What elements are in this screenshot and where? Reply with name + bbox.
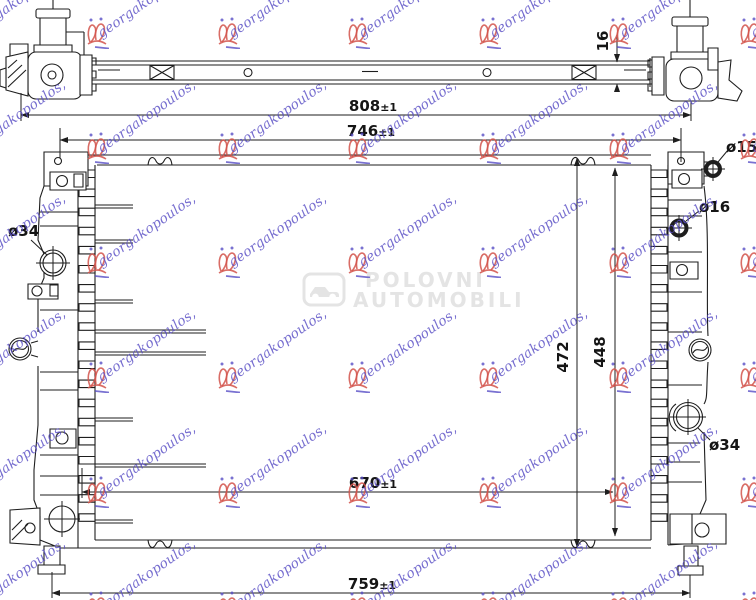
right-foot-pin [678, 546, 703, 575]
right-port-15 [701, 157, 725, 181]
right-crimp-tabs [651, 170, 667, 521]
dim-bottom-width: 759±1 [348, 575, 396, 593]
label-right-port-16: ø16 [699, 198, 730, 216]
left-mount-boss [10, 501, 80, 545]
right-port-34 [669, 399, 706, 435]
bottom-clip-right [571, 540, 595, 547]
right-pump-assembly [648, 0, 742, 101]
crossbar-hole-right [483, 69, 491, 77]
label-left-port-34: ø34 [8, 222, 39, 240]
crossbar-bowtie-right [572, 66, 596, 80]
radiator-technical-drawing: 16 808±1 746±1 472 448 670±1 759±1 [0, 0, 756, 600]
crossbar [92, 58, 650, 87]
bottom-clip-left [148, 540, 172, 547]
right-bracket-mid [670, 262, 698, 279]
crossbar-hole-left [244, 69, 252, 77]
left-bracket-low [50, 429, 76, 448]
dim-overall-height: 472 [554, 341, 572, 372]
dim-lower-width: 670±1 [349, 474, 397, 492]
dimension-annotations: 16 808±1 746±1 472 448 670±1 759±1 [8, 31, 756, 598]
label-right-port-15: ø15 [726, 138, 756, 156]
top-clip-left [148, 158, 172, 165]
left-foot-pin [38, 546, 65, 574]
dim-overall-width: 808±1 [349, 97, 397, 115]
crossbar-bowtie-left [150, 66, 174, 80]
label-right-port-34: ø34 [709, 436, 740, 454]
left-bracket-mid [28, 284, 58, 299]
left-tank [9, 152, 88, 574]
radiator-drawing-page: POLOVNI AUTOMOBILI [0, 0, 756, 600]
left-crimp-tabs [79, 170, 95, 521]
dim-upper-width: 746±1 [347, 122, 395, 140]
right-cap [689, 339, 711, 361]
dim-core-height: 448 [591, 336, 609, 367]
top-clip-right [571, 158, 595, 165]
left-cap [9, 338, 38, 360]
left-port-34 [36, 246, 70, 280]
right-bracket-low [670, 514, 726, 544]
left-pump-assembly [0, 0, 96, 99]
dim-bar-thickness: 16 [594, 31, 612, 52]
